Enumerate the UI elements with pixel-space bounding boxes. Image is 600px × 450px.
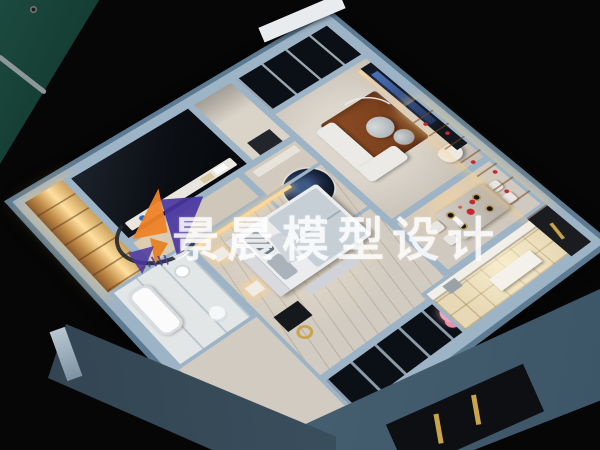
red-bottle	[422, 122, 429, 127]
plate	[444, 210, 457, 220]
toilet	[205, 303, 231, 325]
cooktop	[442, 278, 463, 294]
sink	[171, 262, 194, 281]
red-bottle	[444, 131, 451, 136]
plate	[457, 221, 470, 231]
gold-handle	[471, 395, 481, 425]
photo-apartment-scale-model: 景晨模型设计	[0, 0, 600, 450]
red-bottle	[470, 159, 477, 164]
plate	[470, 193, 483, 203]
bathtub	[125, 282, 187, 339]
screw-head	[30, 6, 37, 13]
nightstand-lamp	[210, 246, 230, 262]
red-bottle	[492, 169, 499, 174]
red-dishes	[465, 207, 476, 216]
nightstand-lamp	[245, 280, 266, 297]
blue-chair	[138, 214, 148, 222]
gold-handle	[433, 413, 443, 443]
desk-items	[213, 163, 229, 174]
red-bottle	[503, 189, 510, 194]
gold-handle	[549, 223, 565, 240]
plate	[483, 204, 496, 214]
